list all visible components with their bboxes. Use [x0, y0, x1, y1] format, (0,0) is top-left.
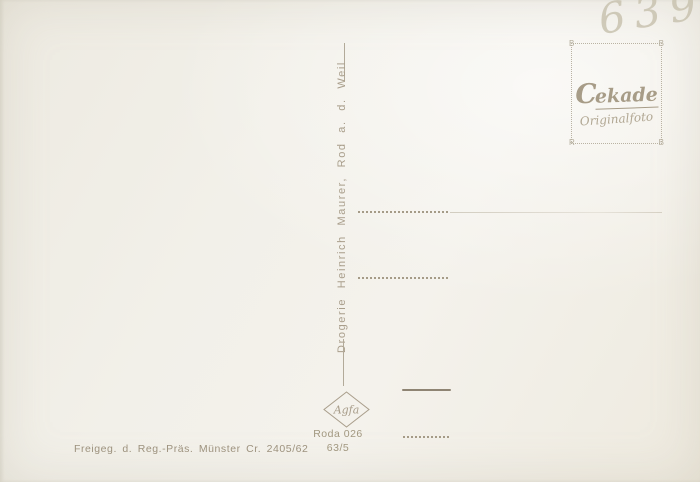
- handwritten-number: 6395: [595, 0, 700, 44]
- agfa-diamond-icon: Agfa: [323, 391, 370, 428]
- agfa-logo-text: Agfa: [333, 404, 360, 417]
- stamp-corner-mark: B: [569, 40, 574, 48]
- cekade-logo-rest: ekade: [594, 84, 658, 110]
- address-line-1-extension: [450, 212, 662, 213]
- stamp-corner-mark: B: [659, 139, 664, 147]
- approval-imprint: Freigeg. d. Reg.-Präs. Münster Cr. 2405/…: [74, 443, 308, 455]
- order-code: 63/5: [306, 442, 370, 454]
- order-number: Roda 026: [306, 428, 370, 440]
- address-line-2: [358, 277, 450, 279]
- stamp-corner-mark: B: [659, 40, 664, 48]
- sender-line: [402, 389, 451, 391]
- address-line-3: [403, 436, 449, 438]
- divider-line-bottom: [343, 339, 344, 386]
- stamp-box: B B R B Cekade Originalfoto: [571, 43, 662, 144]
- originalfoto-label: Originalfoto: [572, 109, 662, 129]
- publisher-imprint: Drogerie Heinrich Maurer, Rod a. d. Weil: [336, 61, 348, 353]
- address-line-1: [358, 211, 450, 213]
- cekade-logo-initial: C: [575, 79, 598, 111]
- stamp-corner-mark: R: [569, 139, 575, 147]
- postcard-back: 6395 B B R B Cekade Originalfoto Drogeri…: [0, 0, 700, 482]
- cekade-logo: Cekade: [571, 76, 661, 110]
